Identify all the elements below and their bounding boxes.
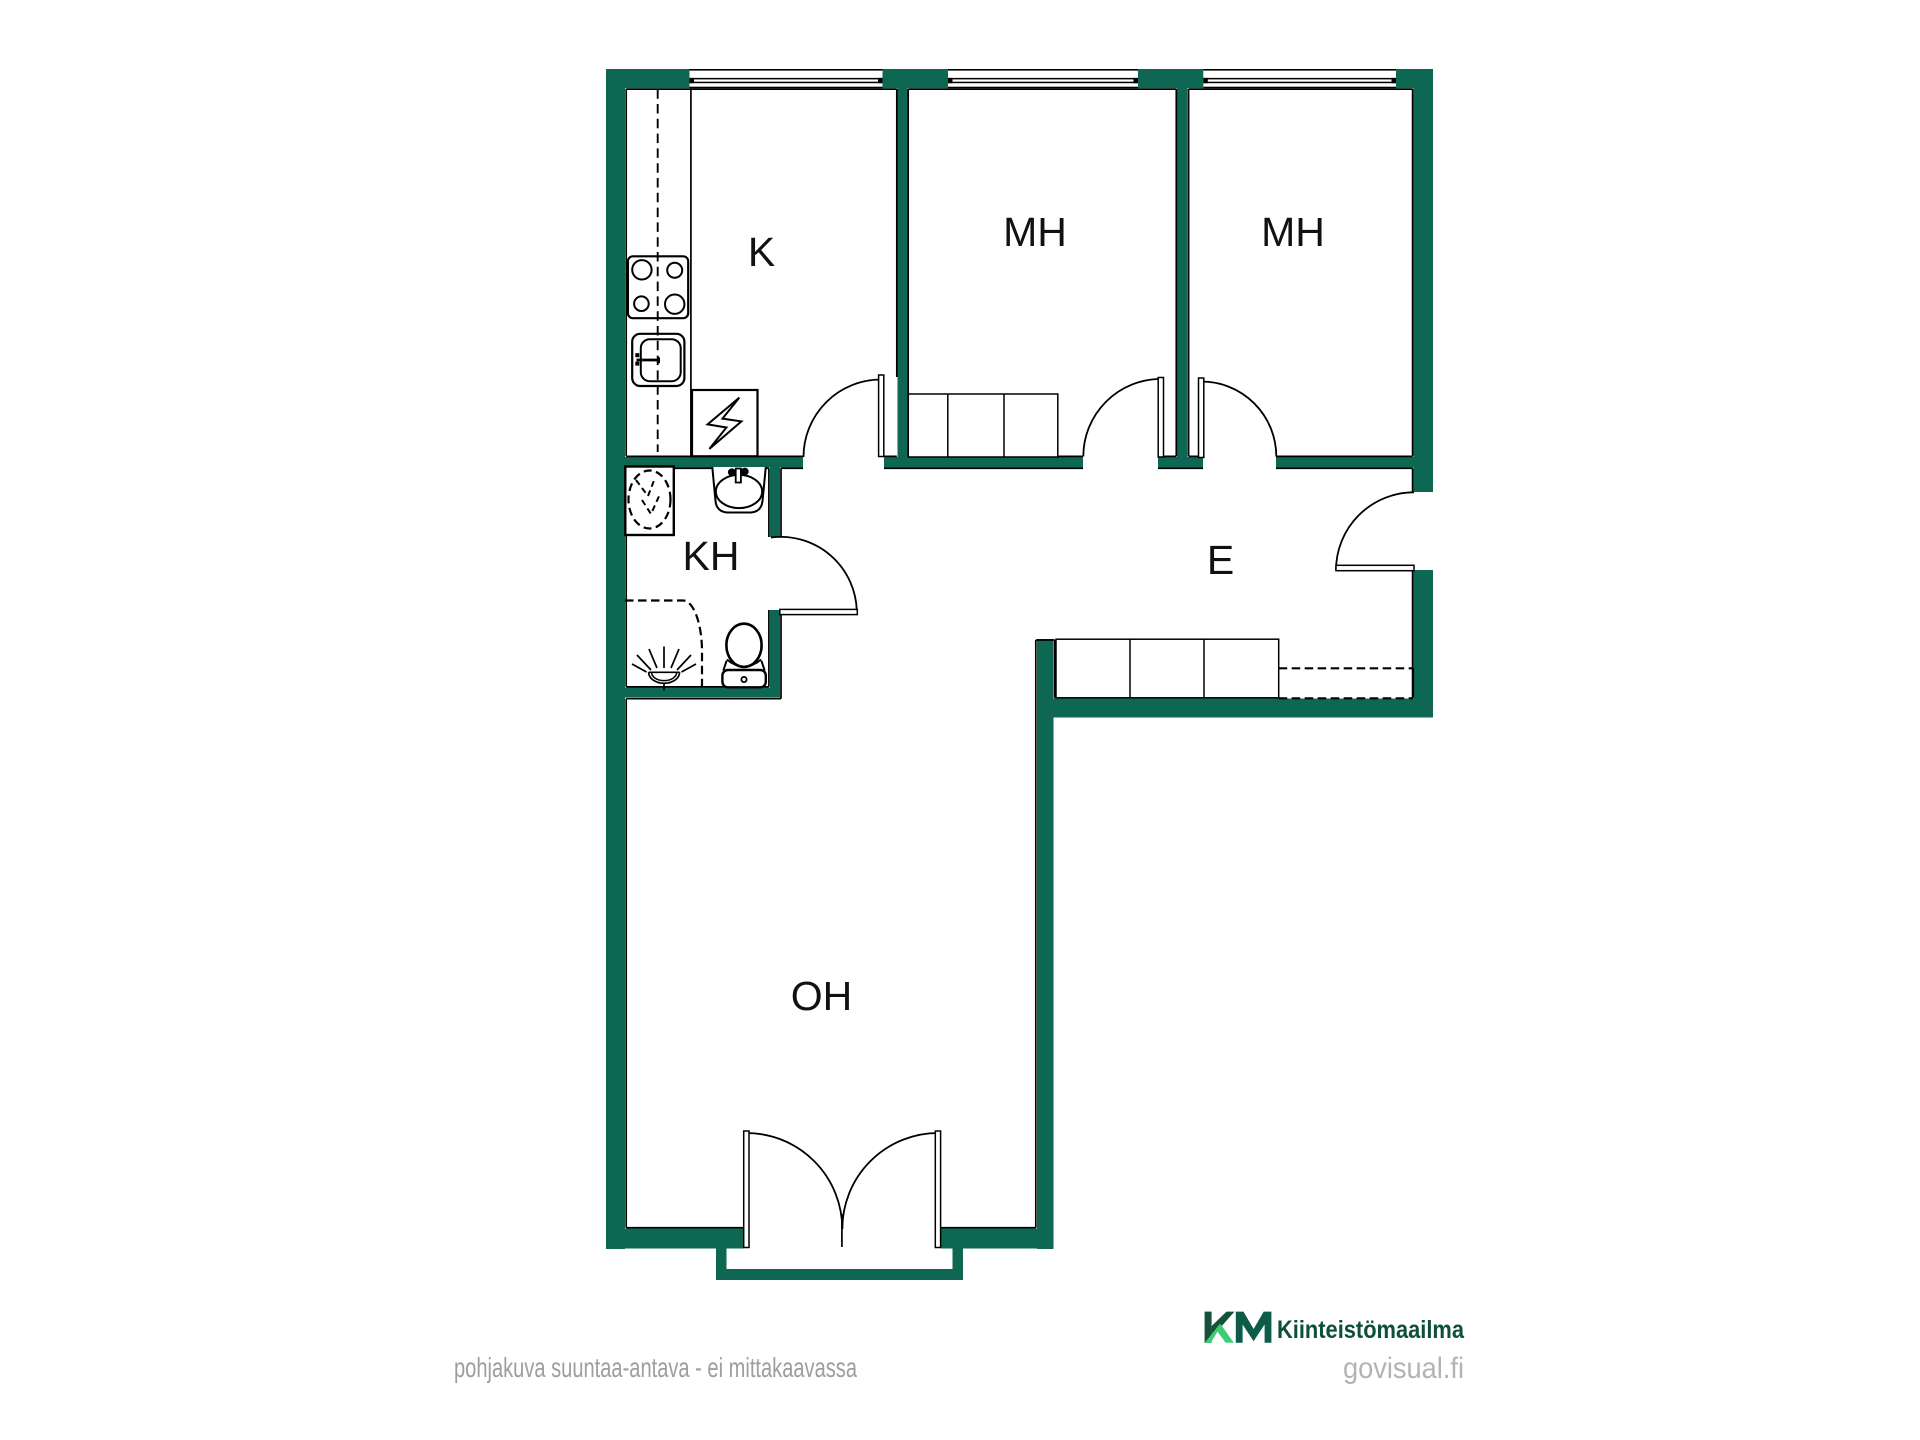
svg-text:OH: OH (791, 973, 853, 1019)
svg-text:govisual.fi: govisual.fi (1343, 1352, 1464, 1385)
svg-text:E: E (1207, 537, 1234, 583)
svg-text:K: K (748, 229, 775, 275)
svg-text:pohjakuva suuntaa-antava - ei: pohjakuva suuntaa-antava - ei mittakaava… (454, 1352, 857, 1383)
svg-text:Kiinteistömaailma: Kiinteistömaailma (1277, 1316, 1465, 1344)
svg-text:KH: KH (683, 533, 740, 579)
svg-text:MH: MH (1003, 209, 1067, 255)
svg-text:MH: MH (1261, 209, 1325, 255)
